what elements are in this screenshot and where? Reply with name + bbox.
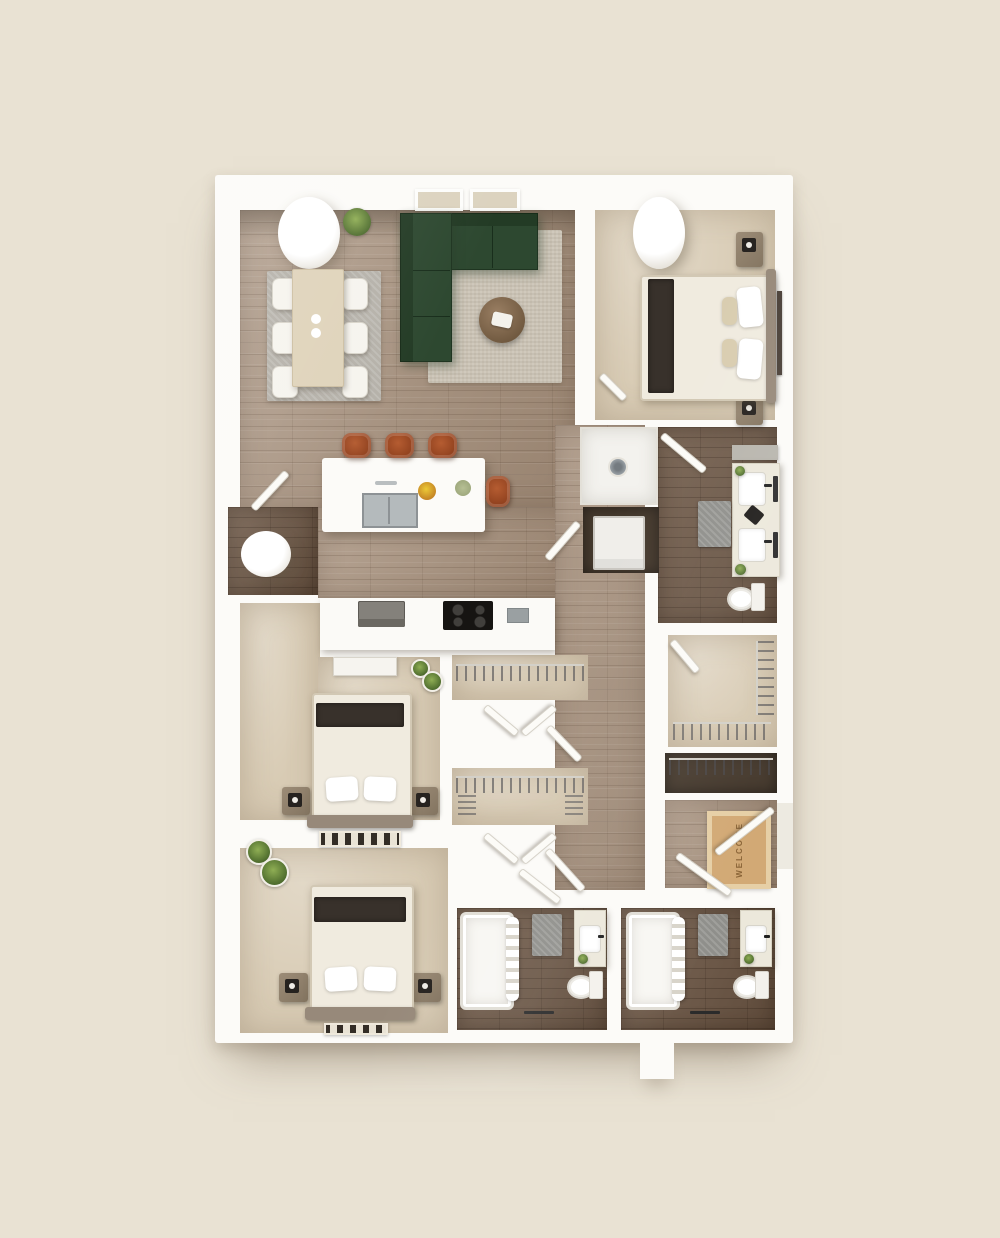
dining-chair bbox=[342, 322, 368, 354]
table-decor bbox=[311, 314, 321, 324]
faucet bbox=[764, 540, 772, 543]
closet-hangers bbox=[456, 776, 584, 793]
closet-hangers bbox=[756, 641, 774, 715]
floor-plan: WELCOME bbox=[215, 175, 793, 1091]
coffee-table-tray bbox=[491, 311, 513, 329]
double-vanity bbox=[732, 463, 780, 577]
vanity-plant bbox=[578, 954, 588, 964]
bed-pillow bbox=[736, 338, 763, 380]
dresser bbox=[333, 657, 397, 676]
bed-bedroom-1 bbox=[640, 275, 774, 401]
closet-shelf-items bbox=[458, 793, 476, 815]
window bbox=[415, 189, 463, 211]
faucet bbox=[764, 935, 770, 938]
towel bbox=[773, 532, 778, 558]
bed-pillow-accent bbox=[722, 339, 737, 367]
headboard bbox=[307, 815, 413, 828]
coffee-table bbox=[479, 297, 525, 343]
water-heater bbox=[241, 531, 291, 577]
sofa-seam bbox=[492, 226, 493, 268]
bed-pillow bbox=[325, 776, 359, 802]
vanity-tray bbox=[743, 504, 764, 525]
closet-shelf-items bbox=[565, 793, 583, 815]
bar-stool bbox=[428, 433, 457, 458]
bed-throw bbox=[314, 897, 406, 922]
bed-pillow bbox=[324, 966, 358, 992]
wall-slab-bottom-tab bbox=[640, 1043, 674, 1079]
bath-rug bbox=[532, 914, 562, 956]
shower-curtain bbox=[672, 917, 685, 1001]
toilet-tank bbox=[589, 971, 603, 999]
nightstand bbox=[282, 787, 310, 815]
island-faucet bbox=[375, 481, 397, 485]
bed-pillow bbox=[363, 776, 396, 802]
towel bbox=[773, 476, 778, 502]
closet-hangers bbox=[669, 758, 773, 775]
dining-chair bbox=[342, 278, 368, 310]
entry-threshold bbox=[777, 803, 793, 869]
bathroom-cabinet bbox=[732, 445, 778, 460]
kitchen-island bbox=[322, 458, 485, 532]
bed-pillow bbox=[736, 286, 764, 328]
sofa-seam bbox=[413, 270, 450, 271]
column bbox=[278, 197, 340, 269]
oven bbox=[358, 601, 405, 627]
floor-plan-scene: WELCOME bbox=[0, 0, 1000, 1238]
bed-pillow-accent bbox=[722, 297, 737, 325]
faucet bbox=[598, 935, 604, 938]
headboard bbox=[305, 1007, 415, 1020]
dining-chair bbox=[342, 366, 368, 398]
island-plant bbox=[455, 480, 471, 496]
vanity bbox=[740, 910, 772, 967]
dining-table bbox=[292, 269, 344, 387]
vanity-plant bbox=[735, 466, 745, 476]
bed-pillow bbox=[363, 966, 396, 992]
fruit-bowl bbox=[418, 482, 436, 500]
closet-hangers bbox=[456, 664, 584, 681]
column bbox=[633, 197, 685, 269]
vanity-plant bbox=[744, 954, 754, 964]
toilet-tank bbox=[751, 583, 765, 611]
shower-curtain bbox=[506, 917, 519, 1001]
washer-dryer bbox=[593, 516, 645, 570]
potted-plant bbox=[422, 671, 443, 692]
faucet bbox=[764, 484, 772, 487]
bar-stool bbox=[385, 433, 414, 458]
vanity-sink bbox=[745, 925, 767, 953]
potted-plant bbox=[260, 858, 289, 887]
vanity-sink bbox=[738, 528, 766, 562]
runner-rug bbox=[319, 831, 401, 847]
sectional-sofa-side bbox=[400, 213, 452, 362]
towel-bar bbox=[524, 1011, 554, 1014]
counter-sink bbox=[507, 608, 529, 623]
toilet-tank bbox=[755, 971, 769, 999]
vanity-sink bbox=[579, 925, 601, 953]
sofa-seam bbox=[413, 316, 450, 317]
bed-bedroom-2 bbox=[312, 693, 412, 823]
bath-rug bbox=[698, 914, 728, 956]
bed-throw bbox=[648, 279, 674, 393]
closet-hangers bbox=[673, 722, 771, 740]
headboard bbox=[766, 269, 776, 403]
vanity bbox=[574, 910, 606, 967]
shower-drain bbox=[610, 459, 626, 475]
bed-throw bbox=[316, 703, 404, 727]
bed-bedroom-3 bbox=[310, 885, 414, 1015]
kitchen-counter bbox=[320, 598, 555, 650]
nightstand bbox=[279, 973, 308, 1002]
nightstand bbox=[736, 232, 763, 267]
island-sink bbox=[362, 493, 418, 528]
nightstand bbox=[410, 787, 438, 815]
wall-art bbox=[777, 291, 782, 375]
runner-rug bbox=[324, 1023, 388, 1035]
window bbox=[470, 189, 520, 211]
towel-bar bbox=[690, 1011, 720, 1014]
vanity-sink bbox=[738, 472, 766, 506]
bath-rug bbox=[698, 501, 731, 547]
nightstand bbox=[412, 973, 441, 1002]
vanity-plant bbox=[735, 564, 746, 575]
potted-plant bbox=[343, 208, 371, 236]
cooktop bbox=[443, 601, 493, 630]
bar-stool bbox=[486, 476, 510, 507]
bar-stool bbox=[342, 433, 371, 458]
